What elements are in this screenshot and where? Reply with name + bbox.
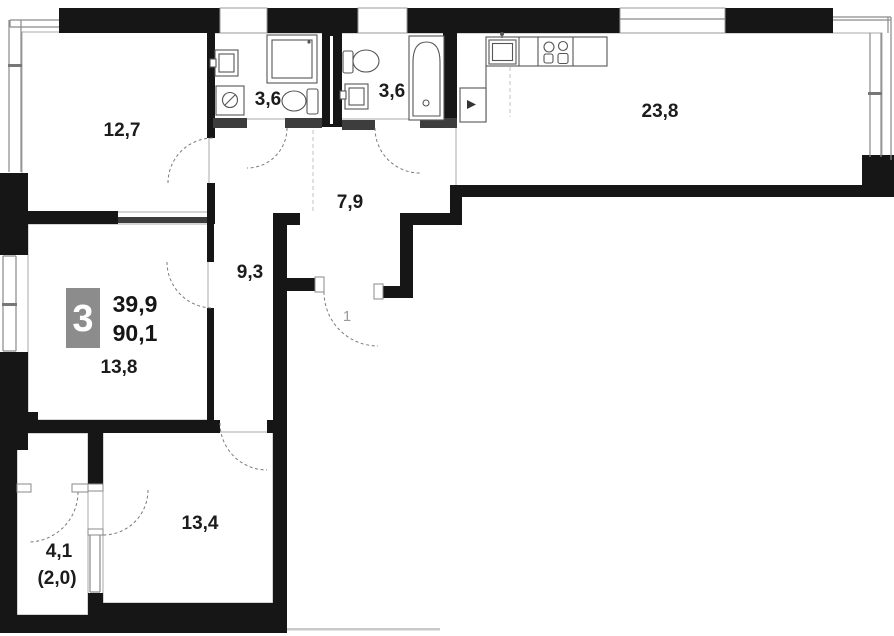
wall-segment	[342, 120, 375, 130]
shaft-slit	[330, 36, 333, 124]
wall-segment	[103, 603, 287, 633]
entrance-door-jamb	[374, 284, 383, 299]
wall-segment	[285, 118, 322, 128]
wall-segment	[267, 420, 273, 433]
wall-segment	[207, 308, 214, 420]
floor-plan-page: 3 39,9 90,1 12,7 3,6 3,6 23,8 7,9 9,3 13…	[0, 0, 894, 636]
entrance-door-jamb	[315, 277, 324, 292]
door-arc-bathroom2	[375, 128, 420, 173]
wall-segment	[213, 118, 247, 128]
wall-segment	[450, 185, 894, 197]
loggia-reduced-label: (2,0)	[37, 568, 76, 589]
window-left-room2	[2, 256, 17, 351]
area-bottom-label: 90,1	[113, 320, 158, 346]
balcony-door-jamb	[88, 484, 103, 491]
wall-segment	[725, 8, 833, 33]
loggia-partition-stub	[72, 484, 88, 492]
wall-segment	[88, 430, 103, 490]
building-edge-line	[287, 628, 440, 631]
loggia-partition-stub	[17, 484, 31, 492]
door-arc-bathroom1	[247, 128, 287, 168]
balcony-door-jamb	[88, 529, 103, 535]
vent-shaft	[220, 8, 267, 33]
entrance-door-number: 1	[343, 308, 351, 325]
loggia-label: 4,1	[46, 541, 73, 562]
wall-segment	[407, 8, 620, 33]
wall-segment	[207, 224, 214, 262]
window-loggia-divider	[90, 533, 100, 592]
washing-machine-icon	[216, 86, 244, 115]
hallway-label: 7,9	[337, 192, 363, 213]
fridge-icon	[460, 88, 486, 122]
wall-segment	[59, 8, 220, 33]
wall-segment	[267, 8, 358, 33]
bathroom-2-label: 3,6	[379, 81, 405, 102]
wall-segment	[88, 593, 103, 633]
wall-segment	[28, 211, 118, 224]
room-13-4-label: 13,4	[182, 513, 219, 534]
window-top-living	[620, 8, 725, 33]
toilet-icon	[343, 50, 379, 73]
shower-icon	[267, 35, 317, 83]
room-12-7-label: 12,7	[104, 120, 141, 141]
bathtub-icon	[409, 36, 444, 120]
wall-segment	[273, 213, 300, 225]
apartment-info-badge: 3 39,9 90,1	[62, 286, 174, 352]
wall-segment	[207, 183, 215, 224]
floor-plan-svg: 3 39,9 90,1 12,7 3,6 3,6 23,8 7,9 9,3 13…	[0, 0, 894, 636]
wall-segment	[273, 213, 287, 632]
vent-shaft	[358, 8, 407, 33]
area-top-label: 39,9	[113, 291, 158, 317]
wall-segment	[28, 420, 220, 433]
room-13-8-label: 13,8	[101, 357, 138, 378]
kitchen-living-label: 23,8	[642, 101, 679, 122]
wall-segment	[862, 155, 894, 197]
wall-segment	[118, 217, 213, 223]
rooms-count-label: 3	[72, 298, 93, 340]
window-left-room1	[8, 20, 22, 172]
wall-segment	[0, 433, 17, 633]
window-top-left	[10, 20, 59, 27]
wall-segment	[443, 33, 457, 118]
bathroom-1-label: 3,6	[255, 89, 281, 110]
wall-segment	[400, 213, 413, 298]
wall-segment	[0, 173, 28, 255]
corridor-label: 9,3	[237, 262, 263, 283]
